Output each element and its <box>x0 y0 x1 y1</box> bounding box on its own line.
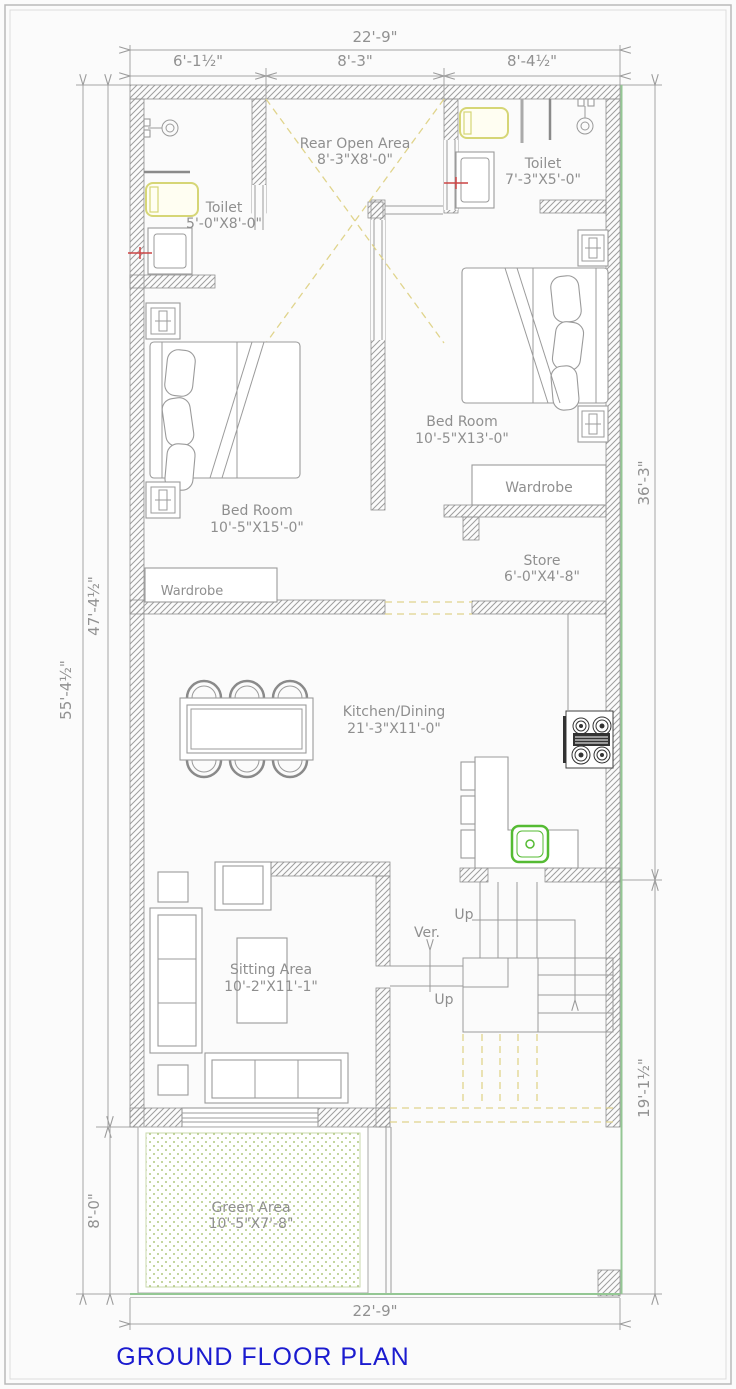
shower-tray-icon <box>148 228 192 274</box>
dim-top-total: 22'-9" <box>352 28 397 46</box>
side-table-icon <box>578 230 608 266</box>
armchair-icon <box>215 862 271 910</box>
bedroom-left-size: 10'-5"X15'-0" <box>210 520 304 536</box>
bedroom-left-label: Bed Room <box>221 503 292 519</box>
store-size: 6'-0"X4'-8" <box>504 569 580 585</box>
dim-front-depth: 8'-0" <box>85 1193 103 1229</box>
windows <box>252 140 458 340</box>
bedroom-right-label: Bed Room <box>426 414 497 430</box>
verandah-label: Ver. <box>414 925 440 941</box>
verandah-entry <box>390 950 463 992</box>
sitting-area-size: 10'-2"X11'-1" <box>224 979 318 995</box>
dim-left-inner: 47'-4½" <box>85 576 103 636</box>
side-table-icon <box>578 406 608 442</box>
wc-icon <box>460 108 508 138</box>
bedroom-right-size: 10'-5"X13'-0" <box>415 431 509 447</box>
shower-head-icon <box>577 99 594 134</box>
floor-plan-canvas: 22'-9" 6'-1½" 8'-3" 8'-4½" 55'-4½" 47'-4… <box>0 0 736 1389</box>
stove-icon <box>563 711 613 768</box>
rear-open-area-size: 8'-3"X8'-0" <box>317 152 393 168</box>
entry-up-label: Up <box>434 992 453 1008</box>
toilet-left-label: Toilet <box>205 200 243 216</box>
sofa-bottom-icon <box>205 1053 348 1103</box>
wardrobe-left-label: Wardrobe <box>161 584 224 599</box>
toilet-left-size: 5'-0"X8'-0" <box>186 216 262 232</box>
toilet-right-fixtures <box>444 99 594 208</box>
sofa-left-icon <box>150 908 202 1053</box>
staircase <box>463 882 613 1032</box>
shower-tray-icon <box>456 152 494 208</box>
dim-right-lower: 19'-1½" <box>635 1058 653 1118</box>
entry-steps <box>182 1108 318 1127</box>
stairs-up-label: Up <box>454 907 473 923</box>
shower-head-icon <box>144 119 178 137</box>
dimension-right: 36'-3" 19'-1½" <box>620 85 662 1294</box>
page-title: GROUND FLOOR PLAN <box>116 1343 409 1371</box>
rear-open-area-label: Rear Open Area <box>300 136 411 152</box>
kitchen-dining-size: 21'-3"X11'-0" <box>347 721 441 737</box>
dim-left-outer: 55'-4½" <box>57 660 75 720</box>
toilet-right-size: 7'-3"X5'-0" <box>505 172 581 188</box>
dining-table-icon <box>180 681 313 777</box>
sitting-area-label: Sitting Area <box>230 962 312 978</box>
bed-left-icon <box>150 342 300 491</box>
wardrobe-right-label: Wardrobe <box>505 480 572 496</box>
wc-icon <box>146 183 198 216</box>
store-label: Store <box>523 553 560 569</box>
dimension-left: 55'-4½" 47'-4½" 8'-0" <box>57 85 134 1294</box>
kitchen-dining-label: Kitchen/Dining <box>343 704 446 720</box>
toilet-right-label: Toilet <box>524 156 562 172</box>
dim-top-left: 6'-1½" <box>173 52 223 70</box>
sink-icon <box>512 826 548 862</box>
green-area-size: 10'-5"X7'-8" <box>209 1216 294 1232</box>
floor-plan-drawing: 22'-9" 6'-1½" 8'-3" 8'-4½" 55'-4½" 47'-4… <box>0 0 736 1389</box>
dim-right-upper: 36'-3" <box>635 460 653 505</box>
dim-top-right: 8'-4½" <box>507 52 557 70</box>
dim-bottom-total: 22'-9" <box>352 1302 397 1320</box>
side-table-icon <box>146 482 180 518</box>
side-table-icon <box>146 303 180 339</box>
dim-top-mid: 8'-3" <box>337 52 373 70</box>
corner-table-icon <box>158 872 188 902</box>
corner-table-icon <box>158 1065 188 1095</box>
bed-right-icon <box>462 268 608 411</box>
dimension-bottom: 22'-9" <box>130 1298 620 1330</box>
green-area-label: Green Area <box>211 1200 290 1216</box>
